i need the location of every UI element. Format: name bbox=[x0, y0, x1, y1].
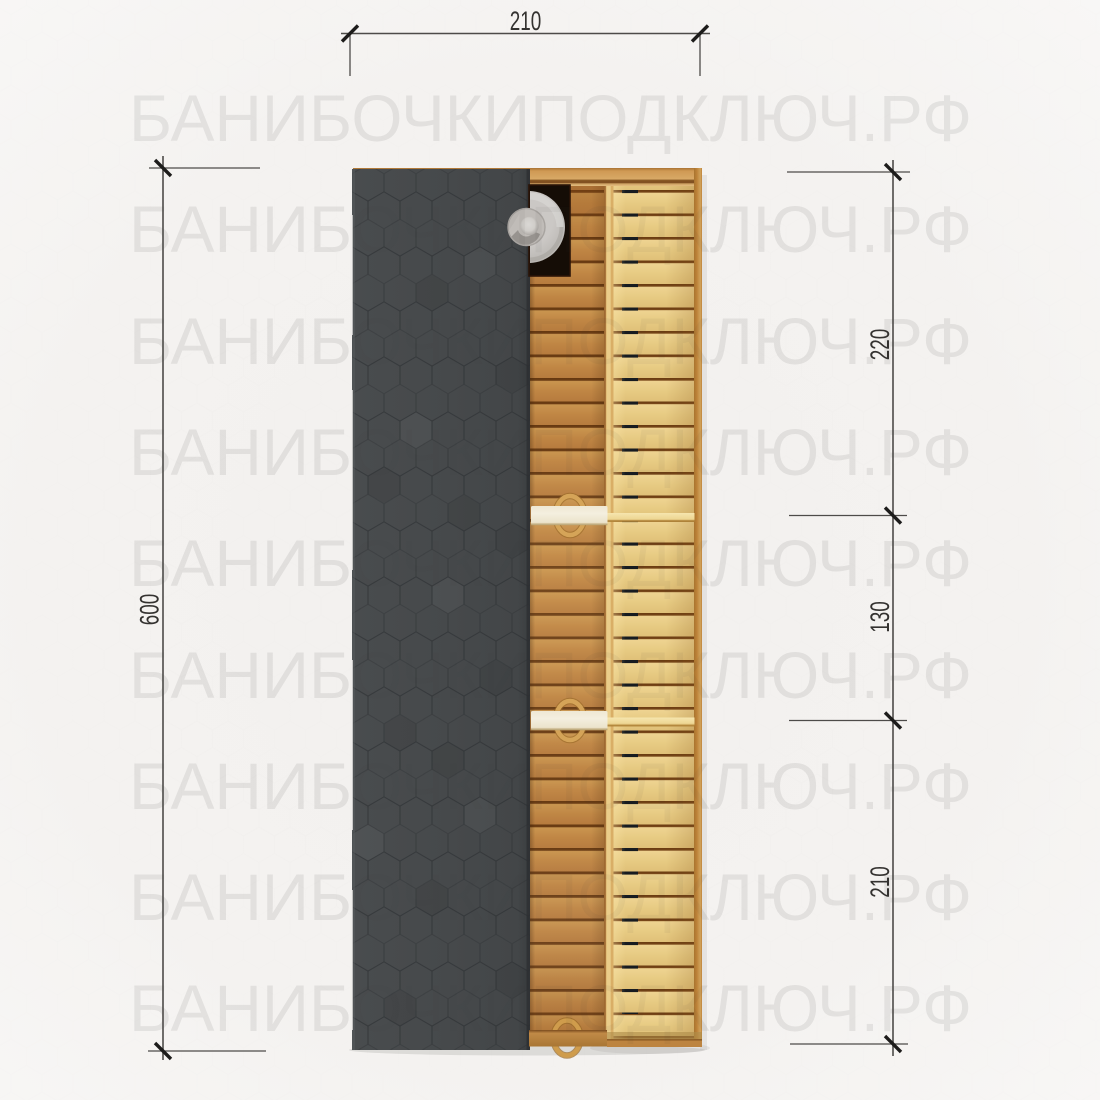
svg-text:130: 130 bbox=[865, 601, 895, 633]
svg-text:БАНИБОЧКИПОДКЛЮЧ.РФ: БАНИБОЧКИПОДКЛЮЧ.РФ bbox=[129, 305, 972, 378]
svg-text:БАНИБОЧКИПОДКЛЮЧ.РФ: БАНИБОЧКИПОДКЛЮЧ.РФ bbox=[129, 193, 972, 266]
svg-text:210: 210 bbox=[865, 866, 895, 898]
svg-text:220: 220 bbox=[865, 329, 895, 361]
svg-text:БАНИБОЧКИПОДКЛЮЧ.РФ: БАНИБОЧКИПОДКЛЮЧ.РФ bbox=[129, 416, 972, 489]
svg-text:БАНИБОЧКИПОДКЛЮЧ.РФ: БАНИБОЧКИПОДКЛЮЧ.РФ bbox=[129, 972, 972, 1045]
svg-text:600: 600 bbox=[134, 594, 164, 626]
svg-text:БАНИБОЧКИПОДКЛЮЧ.РФ: БАНИБОЧКИПОДКЛЮЧ.РФ bbox=[129, 639, 972, 712]
svg-text:БАНИБОЧКИПОДКЛЮЧ.РФ: БАНИБОЧКИПОДКЛЮЧ.РФ bbox=[129, 82, 972, 155]
svg-text:БАНИБОЧКИПОДКЛЮЧ.РФ: БАНИБОЧКИПОДКЛЮЧ.РФ bbox=[129, 861, 972, 934]
svg-text:210: 210 bbox=[510, 6, 542, 36]
svg-text:БАНИБОЧКИПОДКЛЮЧ.РФ: БАНИБОЧКИПОДКЛЮЧ.РФ bbox=[129, 750, 972, 823]
svg-text:БАНИБОЧКИПОДКЛЮЧ.РФ: БАНИБОЧКИПОДКЛЮЧ.РФ bbox=[129, 527, 972, 600]
